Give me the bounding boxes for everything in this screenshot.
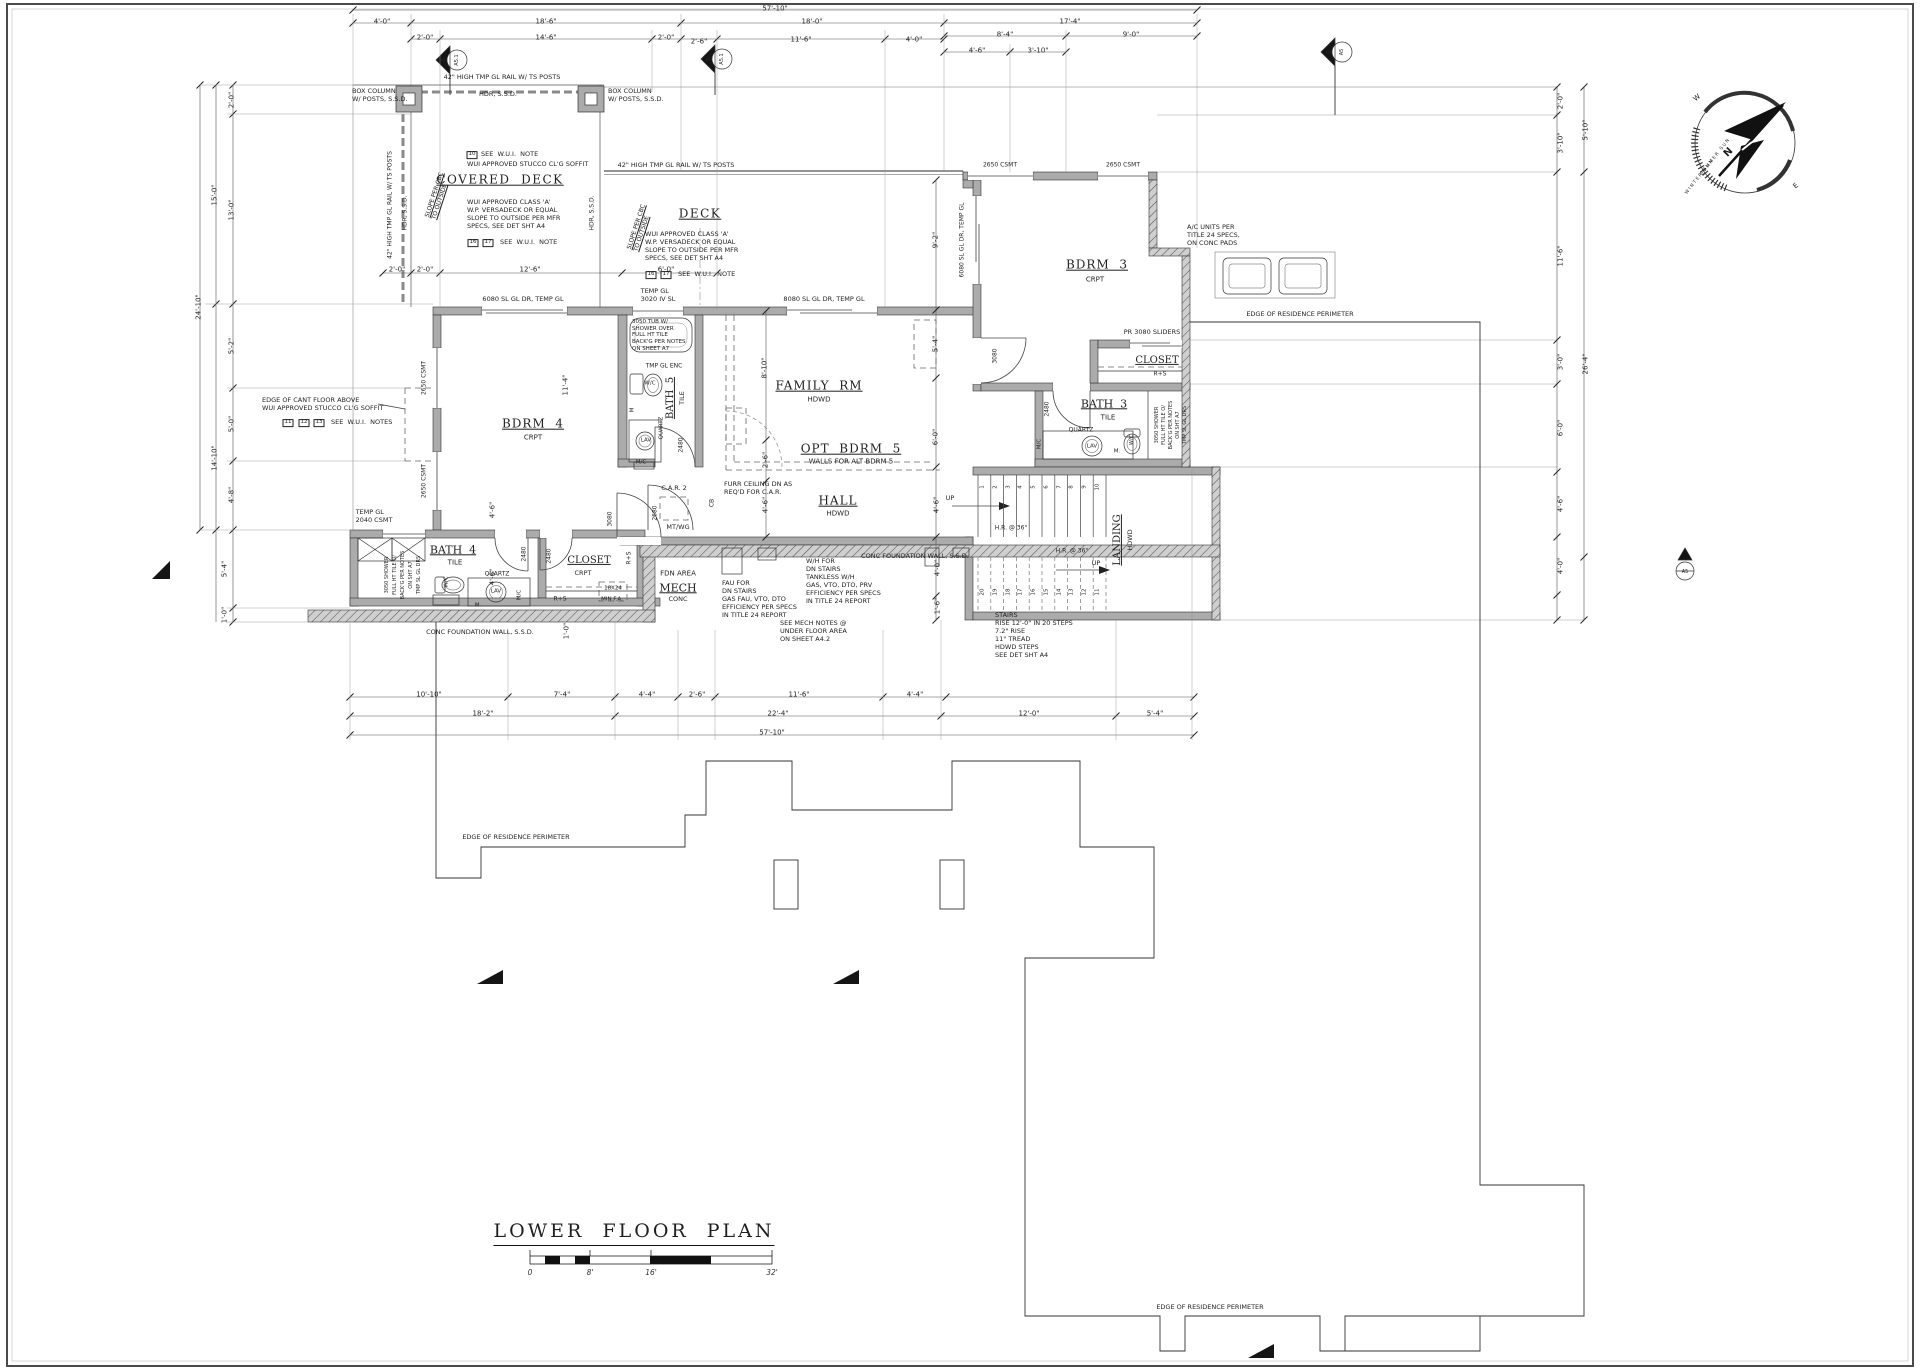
plan-label: 10 — [467, 151, 478, 159]
plan-label: UP — [946, 495, 955, 503]
annotation-layer: 57'-10"4'-0"18'-6"18'-0"17'-4"2'-0"14'-6… — [0, 0, 1920, 1370]
note-box-column-left: BOX COLUMN W/ POSTS, S.S.D. — [352, 88, 408, 104]
plan-label: 5'-4" — [1147, 710, 1164, 719]
plan-label: HDR, S.S.D. — [401, 195, 408, 230]
section-marker-letter: B — [705, 57, 712, 62]
plan-label: W/C — [644, 381, 655, 388]
plan-label: 8'-10" — [761, 357, 770, 378]
room-bdrm-4: BDRM 4 — [502, 417, 564, 432]
plan-label: 8 — [1069, 485, 1076, 489]
dim-overall-bottom: 57'-10" — [759, 729, 784, 738]
room-closet-bdrm3: CLOSET — [1135, 355, 1178, 367]
plan-label: 11'-6" — [788, 691, 809, 700]
plan-label: 2650 CSMT — [983, 161, 1017, 168]
note-fau: FAU FOR DN STAIRS GAS FAU, VTO, DTO EFFI… — [722, 580, 797, 620]
note-box-column-right: BOX COLUMN W/ POSTS, S.S.D. — [608, 88, 664, 104]
plan-label: 18 — [1006, 589, 1013, 596]
plan-label: 12'-6" — [519, 266, 540, 275]
plan-label: A5 — [1339, 49, 1345, 56]
plan-label: 4'-6" — [969, 47, 986, 56]
plan-label: ON SHT A7 — [408, 561, 414, 588]
room-covered-deck: COVERED DECK — [436, 173, 563, 188]
plan-label: 7'-4" — [554, 691, 571, 700]
plan-label: SLOPE PER CBC TO OUTSIDE — [626, 203, 654, 252]
note-stairs: STAIRS RISE 12'-0" IN 20 STEPS 7.2" RISE… — [995, 612, 1073, 660]
plan-label: FULL HT TILE O/ — [392, 555, 398, 595]
scale-tick-8: 8' — [587, 1268, 594, 1277]
plan-label: 5'-10" — [1582, 119, 1591, 140]
plan-label: 6'-0" — [1557, 420, 1566, 437]
plan-label: 6'-0" — [658, 266, 675, 275]
compass-west: W — [1692, 93, 1703, 104]
room-deck: DECK — [679, 207, 722, 222]
plan-label: WUI APPROVED CLASS 'A' W.P. VERSADECK OR… — [467, 199, 560, 231]
plan-label: 17 — [661, 271, 672, 279]
section-marker-letter: B — [1325, 50, 1332, 55]
plan-label: 18'-6" — [535, 18, 556, 27]
plan-label: EDGE OF CANT FLOOR ABOVE WUI APPROVED ST… — [262, 397, 383, 413]
plan-label: 14 — [1057, 589, 1064, 596]
plan-label: LAV — [641, 438, 651, 445]
plan-title: LOWER FLOOR PLAN — [493, 1220, 774, 1246]
compass-summer-sun: SUMMER SUN — [1700, 137, 1733, 177]
plan-label: 3050 TUB W/ SHOWER OVER FULL HT TILE BAC… — [632, 319, 686, 353]
plan-label: 42" HIGH TMP GL RAIL W/ TS POSTS — [386, 151, 393, 259]
plan-label: LAV — [491, 589, 501, 596]
plan-label: 5'-2" — [228, 338, 237, 355]
plan-label: 15 — [1044, 589, 1051, 596]
plan-label: 3 — [1006, 485, 1013, 489]
plan-label: HDR, S.S.D. — [479, 91, 517, 99]
plan-label: 2'-6" — [762, 452, 771, 469]
plan-label: CONC — [668, 596, 687, 604]
plan-label: 13 — [314, 419, 325, 427]
plan-label: 4'-0" — [1557, 558, 1566, 575]
plan-label: 16 — [468, 239, 479, 247]
plan-label: H.R. @ 36" — [1056, 547, 1088, 554]
room-bdrm-3: BDRM 3 — [1066, 258, 1128, 273]
plan-label: 7 — [1057, 485, 1064, 489]
room-family-rm: FAMILY RM — [775, 379, 862, 394]
note-wh: W/H FOR DN STAIRS TANKLESS W/H GAS, VTO,… — [806, 558, 881, 606]
plan-label: 9'-2" — [932, 232, 941, 249]
plan-label: 11'-6" — [790, 36, 811, 45]
plan-label: 4 — [1018, 485, 1025, 489]
scale-tick-32: 32' — [766, 1268, 778, 1277]
plan-label: 2480 — [520, 546, 527, 561]
plan-label: 3'-10" — [1557, 132, 1566, 153]
plan-label: CRPT — [1086, 276, 1104, 285]
plan-label: 9'-0" — [1123, 31, 1140, 40]
compass-east: E — [1792, 181, 1801, 190]
plan-label: 4'-0" — [934, 560, 943, 577]
plan-label: 4'-4" — [639, 691, 656, 700]
door-6080-bdrm4: 6080 SL GL DR, TEMP GL — [482, 296, 563, 304]
plan-label: SLOPE PER CBC TO OUTSIDE — [424, 171, 452, 220]
plan-label: 2680 — [651, 505, 658, 520]
plan-label: R+S — [1153, 370, 1166, 377]
plan-label: CB — [708, 499, 715, 507]
plan-label: 2'-0" — [228, 92, 237, 109]
plan-label: 10 — [1095, 484, 1102, 491]
plan-label: 4'-0" — [906, 36, 923, 45]
scale-tick-0: 0 — [528, 1268, 533, 1277]
plan-label: 15'-0" — [211, 184, 220, 205]
plan-label: MT/WG — [666, 524, 689, 532]
compass-winter-sun: WINTER SUN — [1684, 158, 1715, 196]
plan-label: CONC FOUNDATION WALL, S.S.D. — [426, 629, 534, 637]
plan-label: 20 — [980, 589, 987, 596]
plan-label: UP — [1092, 560, 1101, 568]
room-mech: MECH — [659, 581, 696, 594]
door-8080-family: 8080 SL GL DR, TEMP GL — [783, 296, 864, 304]
note-perimeter-1: EDGE OF RESIDENCE PERIMETER — [1246, 311, 1353, 319]
plan-label: SEE W.U.I. NOTE — [678, 271, 735, 279]
plan-label: TMP GL ENC — [646, 362, 683, 369]
plan-label: TILE — [679, 391, 687, 405]
plan-label: C.A.R. 2 — [661, 485, 687, 493]
plan-label: 3050 SHOWER — [384, 557, 390, 594]
plan-label: HDWD — [827, 510, 850, 519]
plan-label: A5.1 — [454, 54, 460, 65]
plan-label: 17 — [483, 239, 494, 247]
plan-label: 4'-8" — [228, 487, 237, 504]
plan-label: 3050 SHOWER — [1154, 407, 1160, 444]
dim-overall-left: 24'-10" — [195, 294, 204, 319]
plan-label: 1'-0" — [221, 607, 230, 624]
plan-label: M/C — [1037, 439, 1044, 449]
room-opt-bdrm-5: OPT BDRM 5 — [801, 442, 902, 457]
plan-label: 3'-0" — [1557, 354, 1566, 371]
plan-label: 2'-6" — [691, 38, 708, 47]
plan-label: QUARTZ — [1069, 426, 1094, 433]
plan-label: W/C — [444, 576, 451, 587]
dim-overall-top: 57'-10" — [762, 5, 787, 14]
plan-label: CRPT — [575, 570, 592, 578]
plan-label: M. — [475, 603, 482, 610]
plan-label: 5 — [1031, 485, 1038, 489]
plan-label: 4'-6" — [489, 569, 498, 586]
plan-label: 2'-0" — [389, 266, 406, 275]
plan-label: 2 — [993, 485, 1000, 489]
plan-label: 2480 — [545, 548, 552, 563]
plan-label: 11 — [283, 419, 294, 427]
plan-label: WUI APPROVED STUCCO CL'G SOFFIT — [467, 161, 588, 169]
plan-label: 2480 — [677, 437, 684, 452]
plan-label: 1'-6" — [934, 598, 943, 615]
plan-label: 4'-4" — [907, 691, 924, 700]
plan-label: TEMP GL 2040 CSMT — [356, 509, 393, 525]
plan-label: 3080 — [991, 348, 998, 363]
plan-label: 5'-4" — [932, 336, 941, 353]
plan-label: 2650 CSMT — [420, 464, 427, 498]
plan-label: HDR, S.S.D. — [588, 195, 595, 230]
plan-label: HDWD — [1127, 529, 1135, 550]
plan-label: QUARTZ — [485, 570, 510, 577]
plan-label: 22'-4" — [767, 710, 788, 719]
plan-label: 4'-6" — [1557, 496, 1566, 513]
plan-label: M/C — [517, 590, 524, 600]
plan-label: 12 — [1082, 589, 1089, 596]
plan-label: LAV — [1087, 444, 1097, 451]
room-closet-hall: CLOSET — [567, 555, 610, 567]
section-marker-letter: A5 — [1682, 569, 1689, 575]
plan-label: 13 — [1069, 589, 1076, 596]
plan-label: 16 — [646, 271, 657, 279]
plan-label: R+S — [625, 551, 632, 564]
plan-label: QUARTZ — [659, 417, 666, 440]
plan-label: SEE W.U.I. NOTE — [500, 239, 557, 247]
plan-label: 4'-0" — [374, 18, 391, 27]
plan-label: 17 — [1018, 589, 1025, 596]
plan-label: 12'-0" — [1018, 710, 1039, 719]
plan-label: 9 — [1082, 485, 1089, 489]
plan-label: FULL HT TILE O/ — [1161, 405, 1167, 445]
plan-label: 10'-10" — [416, 691, 441, 700]
plan-label: SEE W.U.I. NOTE — [481, 151, 538, 159]
plan-label: 18X24 — [604, 586, 622, 593]
plan-label: BACK'G PER NOTES — [400, 551, 406, 600]
plan-label: 2480 — [1043, 401, 1050, 416]
plan-label: 18'-0" — [801, 18, 822, 27]
section-marker-letter: A — [440, 58, 447, 63]
plan-label: CRPT — [524, 434, 542, 443]
plan-label: HDWD — [808, 396, 831, 405]
plan-label: 4'-6" — [489, 502, 498, 519]
plan-label: 42" HIGH TMP GL RAIL W/ TS POSTS — [444, 74, 561, 82]
plan-label: 12 — [299, 419, 310, 427]
plan-label: 17'-4" — [1059, 18, 1080, 27]
plan-label: 6'-0" — [932, 429, 941, 446]
plan-label: 3080 — [606, 511, 613, 526]
plan-label: 2'-0" — [658, 34, 675, 43]
plan-label: 8'-4" — [997, 31, 1014, 40]
room-hall: HALL — [818, 494, 857, 509]
scale-tick-16: 16' — [645, 1268, 657, 1277]
compass-north: N — [1722, 146, 1737, 161]
plan-label: 11'-4" — [562, 374, 571, 395]
plan-label: 2'-0" — [417, 266, 434, 275]
plan-label: 3'-10" — [1027, 47, 1048, 56]
plan-label: 14'-10" — [211, 445, 220, 470]
plan-label: 2650 CSMT — [1106, 161, 1140, 168]
plan-label: 6 — [1044, 485, 1051, 489]
plan-label: 4'-6" — [762, 497, 771, 514]
plan-label: 14'-6" — [535, 34, 556, 43]
plan-label: 2'-6" — [689, 691, 706, 700]
plan-label: WALLS FOR ALT BDRM 5 — [809, 458, 893, 467]
plan-label: 11 — [1095, 589, 1102, 596]
plan-label: 13'-0" — [228, 199, 237, 220]
room-bath-4: BATH 4 — [430, 543, 476, 556]
plan-label: TILE — [448, 559, 463, 568]
room-bath-5: BATH 5 — [665, 377, 677, 419]
plan-label: CONC FOUNDATION WALL, S.S.D. — [861, 553, 969, 561]
plan-label: 4'-6" — [933, 497, 942, 514]
plan-label: 26'-4" — [1582, 353, 1591, 374]
plan-label: W/C — [1129, 435, 1135, 445]
plan-label: H.R. @ 36" — [995, 524, 1027, 531]
note-mech: SEE MECH NOTES @ UNDER FLOOR AREA ON SHE… — [780, 620, 847, 644]
plan-label: TMP SL GL DRS — [1182, 406, 1188, 444]
room-landing: LANDING — [1112, 514, 1124, 565]
plan-label: M. — [1114, 449, 1121, 456]
plan-label: 11'-6" — [1557, 245, 1566, 266]
plan-label: 18'-2" — [472, 710, 493, 719]
plan-label: M — [630, 408, 637, 413]
floor-plan-sheet: { "sheet": { "title": "LOWER FLOOR PLAN"… — [0, 0, 1920, 1370]
plan-label: BACK'G PER NOTES — [1168, 401, 1174, 450]
plan-label: SEE W.U.I. NOTES — [331, 419, 392, 427]
note-perimeter-2: EDGE OF RESIDENCE PERIMETER — [462, 834, 569, 842]
plan-label: 19 — [993, 589, 1000, 596]
plan-label: TEMP GL 3020 IV SL — [641, 288, 676, 304]
note-perimeter-3: EDGE OF RESIDENCE PERIMETER — [1156, 1304, 1263, 1312]
plan-label: 5'-0" — [228, 416, 237, 433]
plan-label: 5'-4" — [221, 561, 230, 578]
plan-label: ON SHT A7 — [1175, 411, 1181, 438]
plan-label: PR 3080 SLIDERS — [1124, 329, 1181, 337]
plan-label: A5.1 — [719, 53, 725, 64]
plan-label: 42" HIGH TMP GL RAIL W/ TS POSTS — [618, 162, 735, 170]
plan-label: FURR CEILING DN AS REQ'D FOR C.A.R. — [724, 481, 792, 497]
door-6080-deck: 6080 SL GL DR, TEMP GL — [958, 203, 965, 278]
plan-label: WUI APPROVED CLASS 'A' W.P. VERSADECK OR… — [645, 231, 738, 263]
plan-label: R+S — [553, 595, 566, 602]
plan-label: M/C — [636, 460, 646, 467]
plan-label: TILE — [1101, 414, 1116, 423]
room-bath-3: BATH 3 — [1081, 397, 1127, 410]
plan-label: 16 — [1031, 589, 1038, 596]
plan-label: 1 — [980, 485, 987, 489]
plan-label: 2'-0" — [417, 34, 434, 43]
note-ac-units: A/C UNITS PER TITLE 24 SPECS, ON CONC PA… — [1187, 224, 1240, 248]
plan-label: TMP SL GL DRS — [416, 556, 422, 594]
plan-label: FDN AREA — [660, 570, 696, 579]
plan-label: 1'-0" — [563, 623, 572, 640]
plan-label: MIN F.A. — [601, 597, 623, 604]
plan-label: 2'-0" — [1557, 93, 1566, 110]
plan-label: 2650 CSMT — [420, 361, 427, 395]
